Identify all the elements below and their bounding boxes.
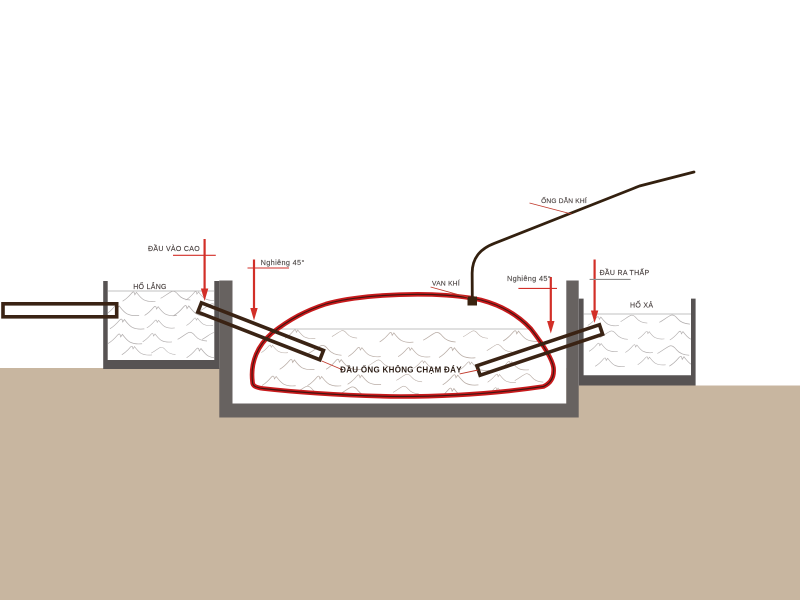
svg-text:VAN KHÍ: VAN KHÍ [432, 278, 460, 287]
svg-text:Nghiêng 45°: Nghiêng 45° [261, 258, 305, 267]
svg-text:ĐẦU ỐNG KHÔNG CHẠM ĐÁY: ĐẦU ỐNG KHÔNG CHẠM ĐÁY [340, 365, 462, 375]
svg-text:Nghiêng 45°: Nghiêng 45° [507, 274, 551, 283]
